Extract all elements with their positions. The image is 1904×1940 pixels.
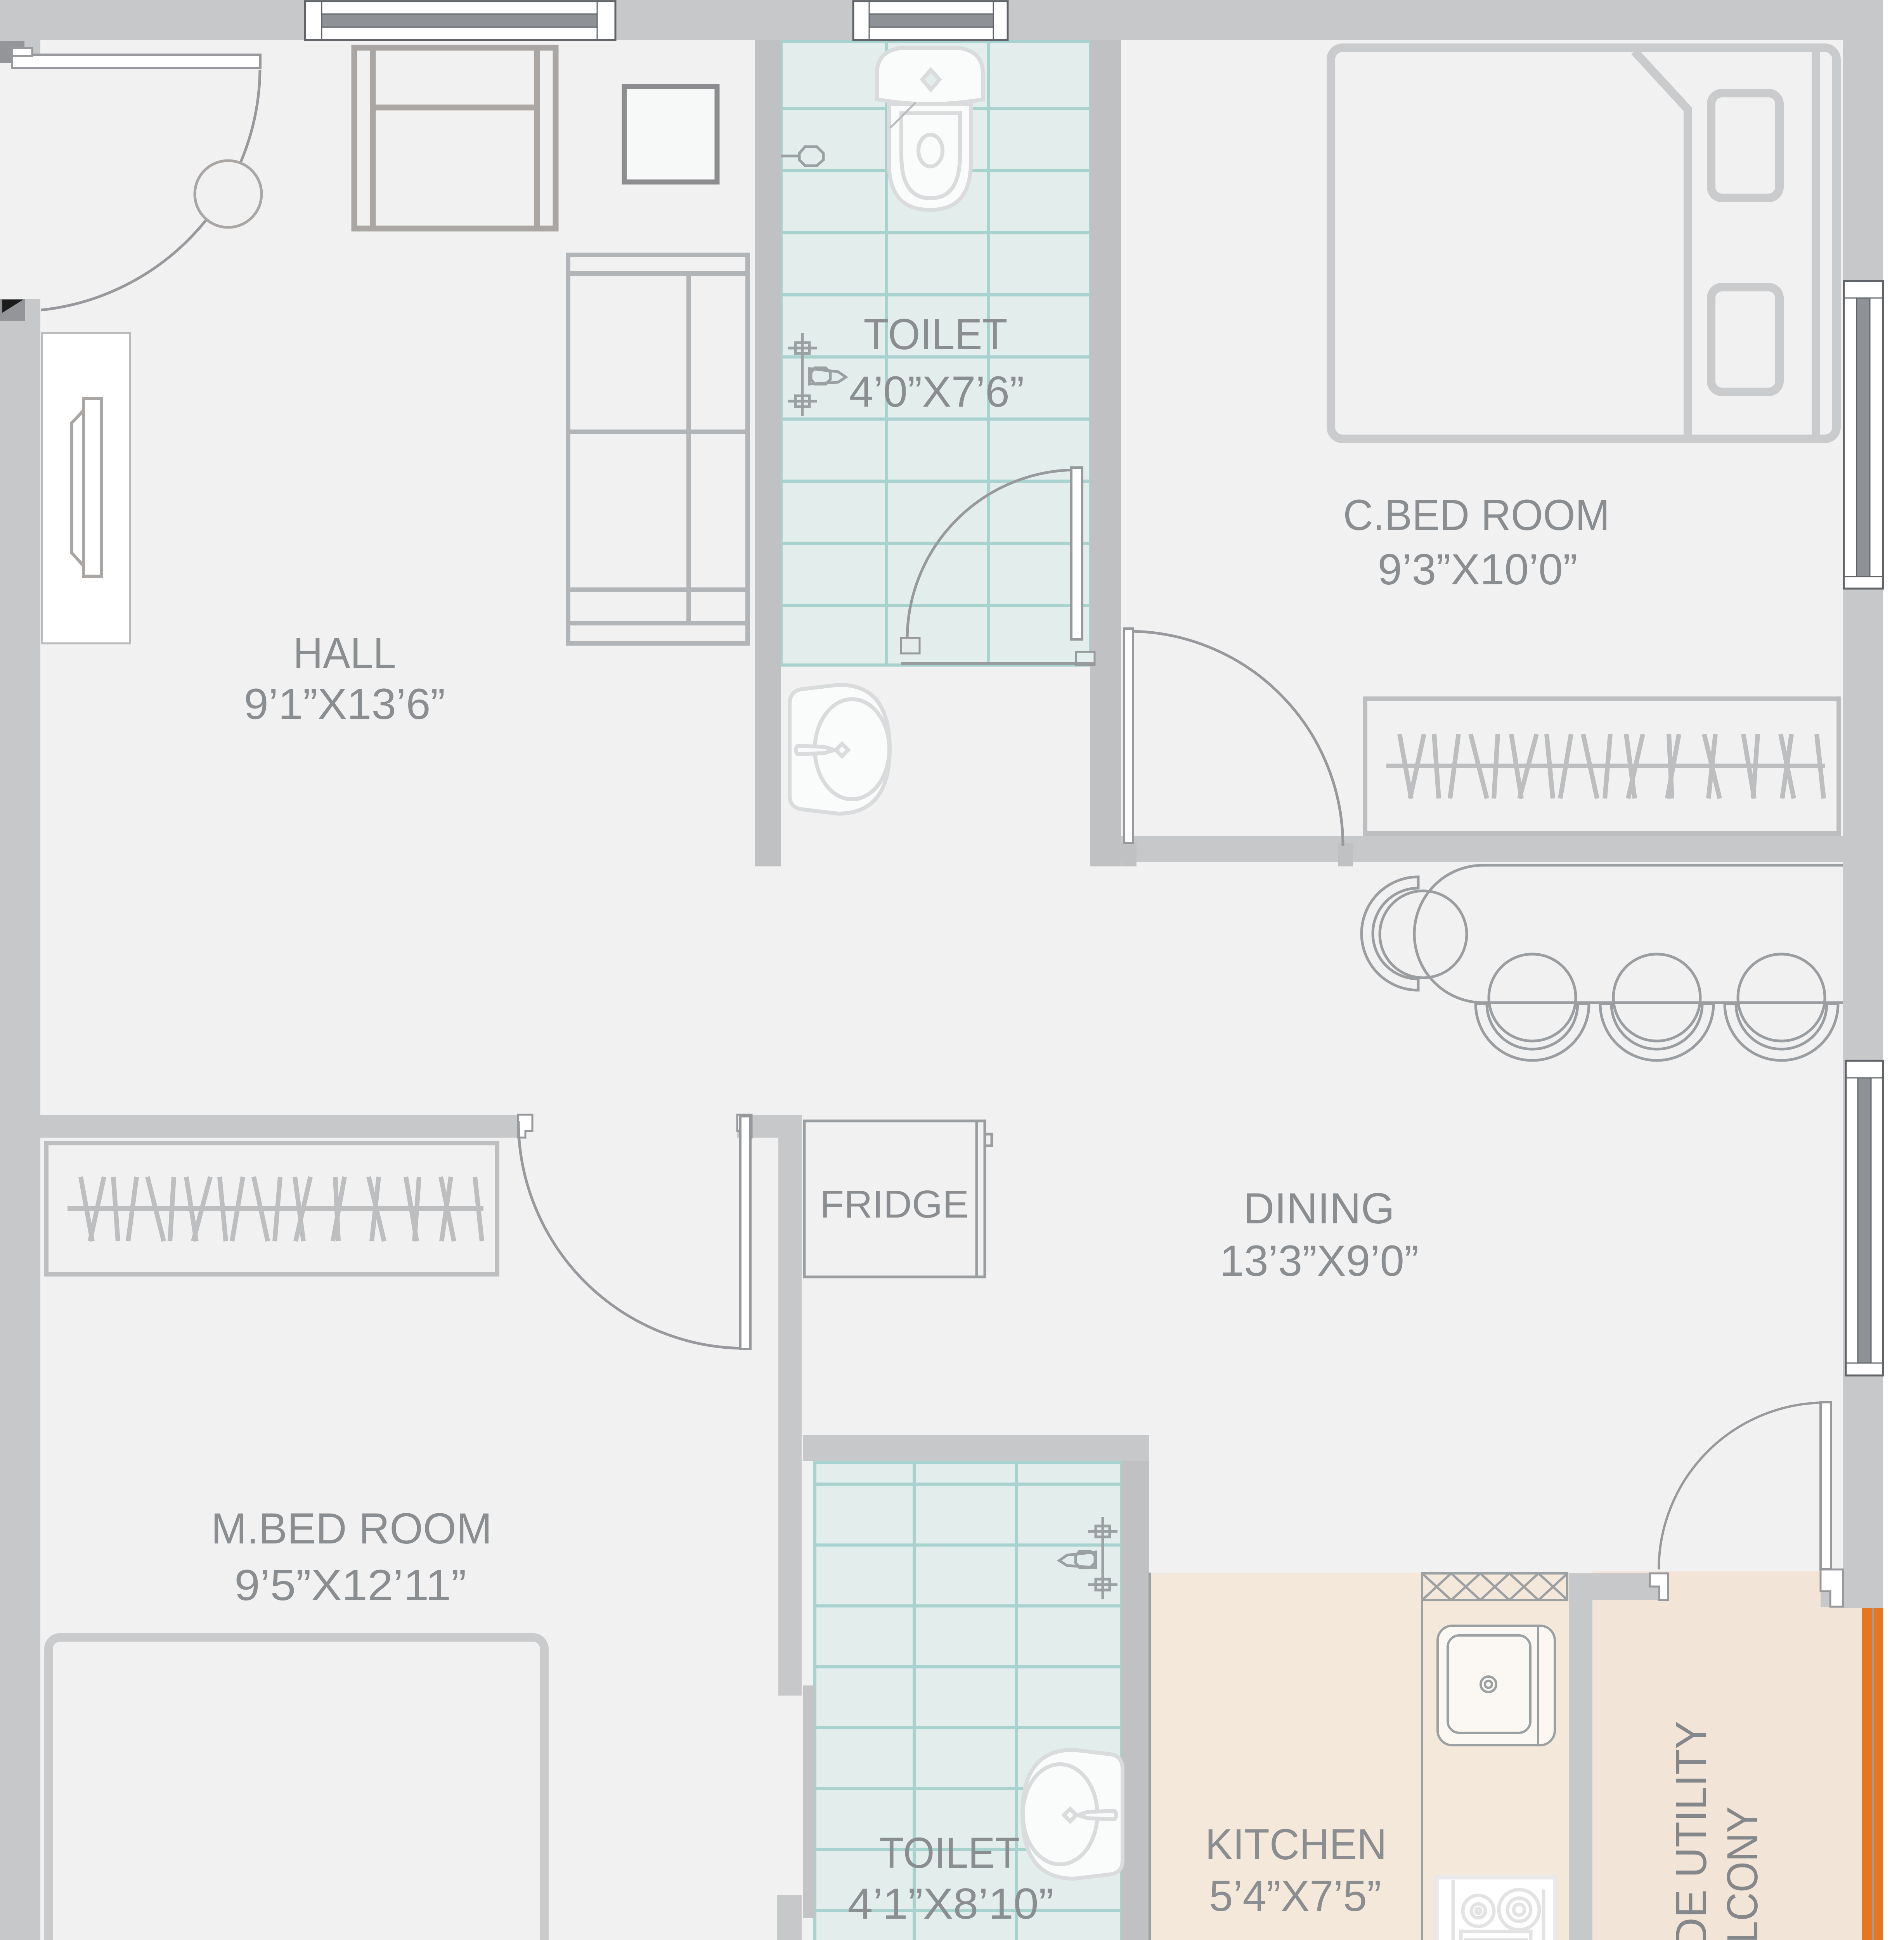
svg-text:TOILET: TOILET	[879, 1829, 1020, 1877]
svg-text:9’5”X12’11”: 9’5”X12’11”	[234, 1561, 466, 1609]
svg-text:C.BED ROOM: C.BED ROOM	[1343, 491, 1610, 539]
svg-text:BALCONY: BALCONY	[1718, 1807, 1767, 1940]
svg-text:9’3”X10’0”: 9’3”X10’0”	[1378, 545, 1578, 594]
svg-text:M.BED ROOM: M.BED ROOM	[211, 1504, 492, 1553]
svg-text:DINING: DINING	[1243, 1184, 1395, 1233]
svg-text:HALL: HALL	[293, 629, 396, 677]
svg-text:FRIDGE: FRIDGE	[820, 1183, 969, 1226]
svg-text:TOILET: TOILET	[864, 310, 1008, 359]
svg-text:13’3”X9’0”: 13’3”X9’0”	[1220, 1237, 1419, 1285]
svg-text:KITCHEN: KITCHEN	[1205, 1820, 1387, 1869]
svg-text:3’9” WIDE UTILITY: 3’9” WIDE UTILITY	[1667, 1721, 1715, 1940]
svg-text:5’4”X7’5”: 5’4”X7’5”	[1209, 1872, 1381, 1920]
svg-text:4’1”X8’10”: 4’1”X8’10”	[848, 1879, 1054, 1928]
svg-text:4’0”X7’6”: 4’0”X7’6”	[849, 367, 1024, 416]
svg-text:9’1”X13’6”: 9’1”X13’6”	[244, 680, 445, 728]
